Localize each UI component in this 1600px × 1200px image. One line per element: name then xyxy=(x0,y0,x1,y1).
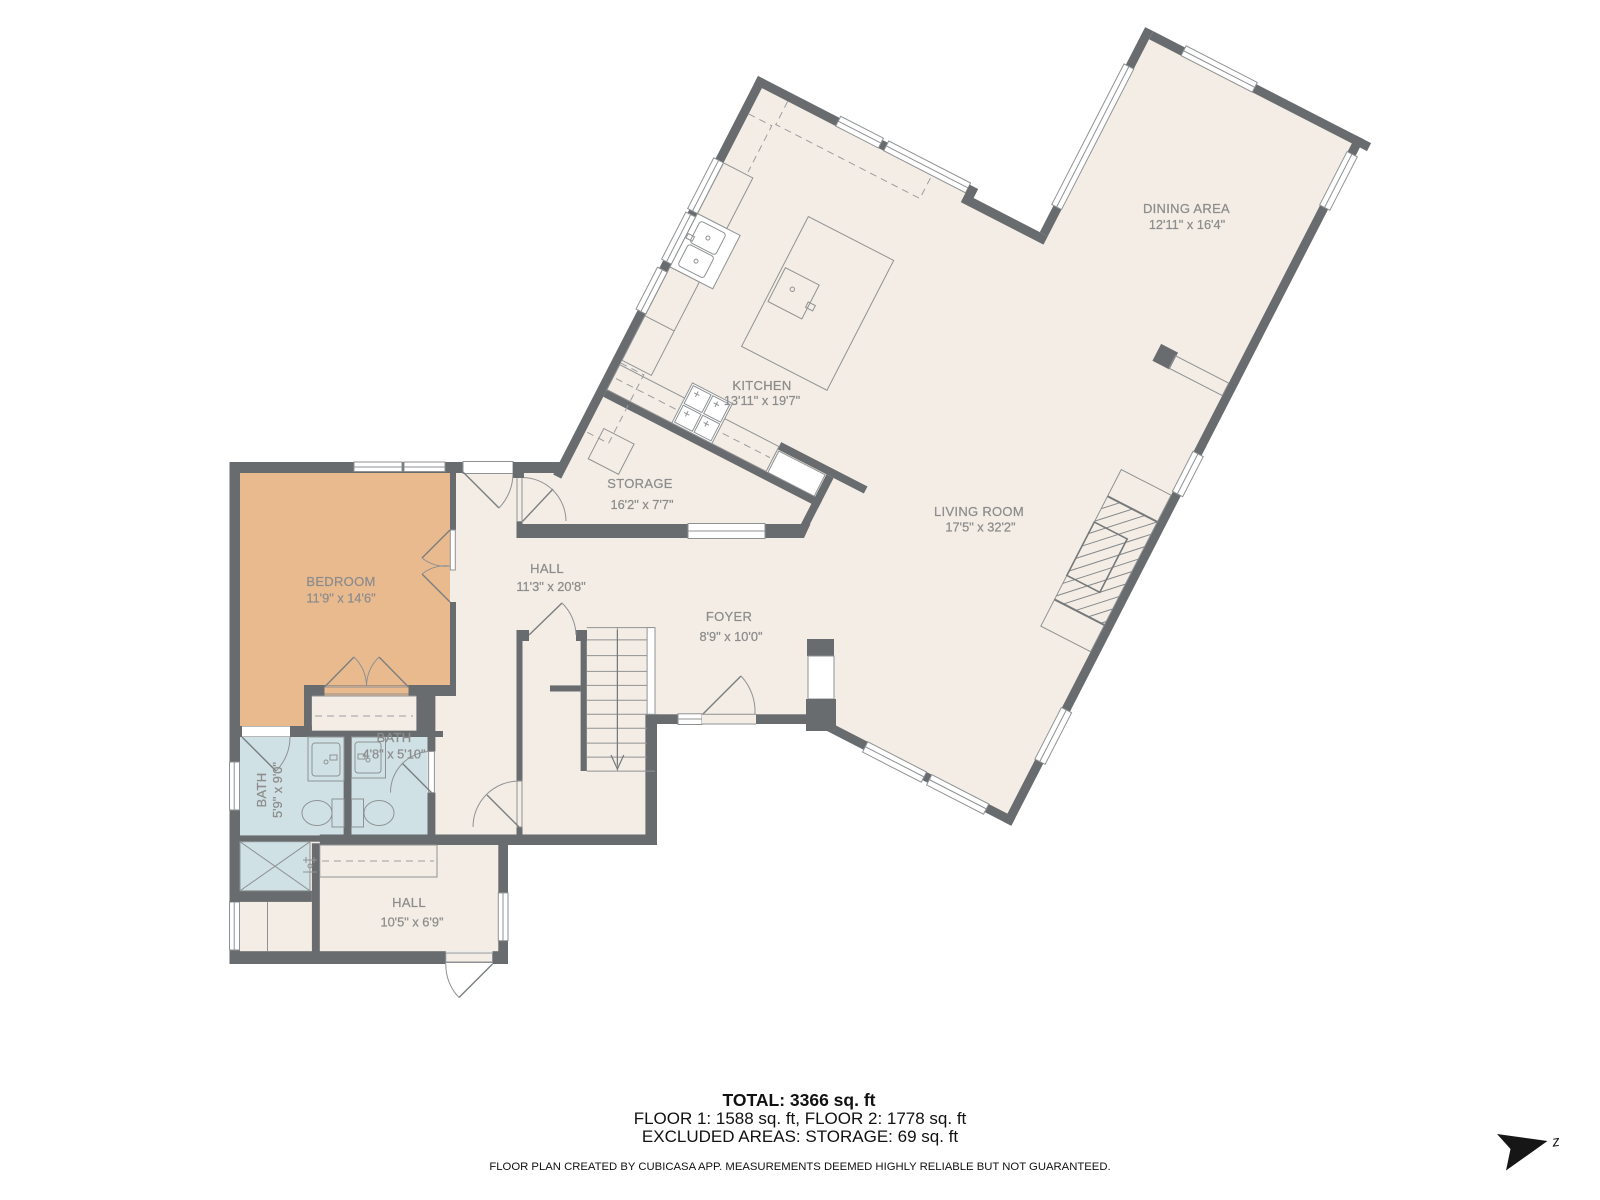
svg-text:11'3" x 20'8": 11'3" x 20'8" xyxy=(516,579,585,594)
svg-text:4'8" x 5'10": 4'8" x 5'10" xyxy=(362,747,425,762)
svg-text:HALL: HALL xyxy=(530,561,564,576)
svg-text:5'9" x 9'0": 5'9" x 9'0" xyxy=(270,762,285,818)
svg-text:BEDROOM: BEDROOM xyxy=(306,574,375,589)
svg-text:TOTAL: 3366 sq. ft: TOTAL: 3366 sq. ft xyxy=(723,1090,876,1110)
svg-text:STORAGE: STORAGE xyxy=(607,476,672,491)
svg-text:HALL: HALL xyxy=(392,895,426,910)
svg-text:DINING AREA: DINING AREA xyxy=(1143,201,1230,216)
svg-text:10'5" x 6'9": 10'5" x 6'9" xyxy=(380,915,443,930)
svg-text:11'9" x 14'6": 11'9" x 14'6" xyxy=(306,591,375,606)
svg-text:8'9" x 10'0": 8'9" x 10'0" xyxy=(699,629,762,644)
svg-text:BATH: BATH xyxy=(254,773,269,808)
svg-text:13'11" x 19'7": 13'11" x 19'7" xyxy=(724,393,800,408)
svg-text:12'11" x 16'4": 12'11" x 16'4" xyxy=(1149,217,1225,232)
svg-text:LIVING ROOM: LIVING ROOM xyxy=(934,504,1024,519)
svg-text:FLOOR 1: 1588 sq. ft, FLOOR 2:: FLOOR 1: 1588 sq. ft, FLOOR 2: 1778 sq. … xyxy=(634,1109,967,1128)
svg-text:FOYER: FOYER xyxy=(706,609,752,624)
svg-text:FLOOR PLAN CREATED BY CUBICASA: FLOOR PLAN CREATED BY CUBICASA APP. MEAS… xyxy=(489,1161,1110,1173)
svg-text:17'5" x 32'2": 17'5" x 32'2" xyxy=(945,520,1015,535)
svg-text:BATH: BATH xyxy=(377,730,412,745)
svg-text:KITCHEN: KITCHEN xyxy=(732,378,791,393)
svg-text:16'2" x 7'7": 16'2" x 7'7" xyxy=(610,497,673,512)
svg-text:EXCLUDED AREAS: STORAGE: 69 sq: EXCLUDED AREAS: STORAGE: 69 sq. ft xyxy=(642,1127,958,1146)
